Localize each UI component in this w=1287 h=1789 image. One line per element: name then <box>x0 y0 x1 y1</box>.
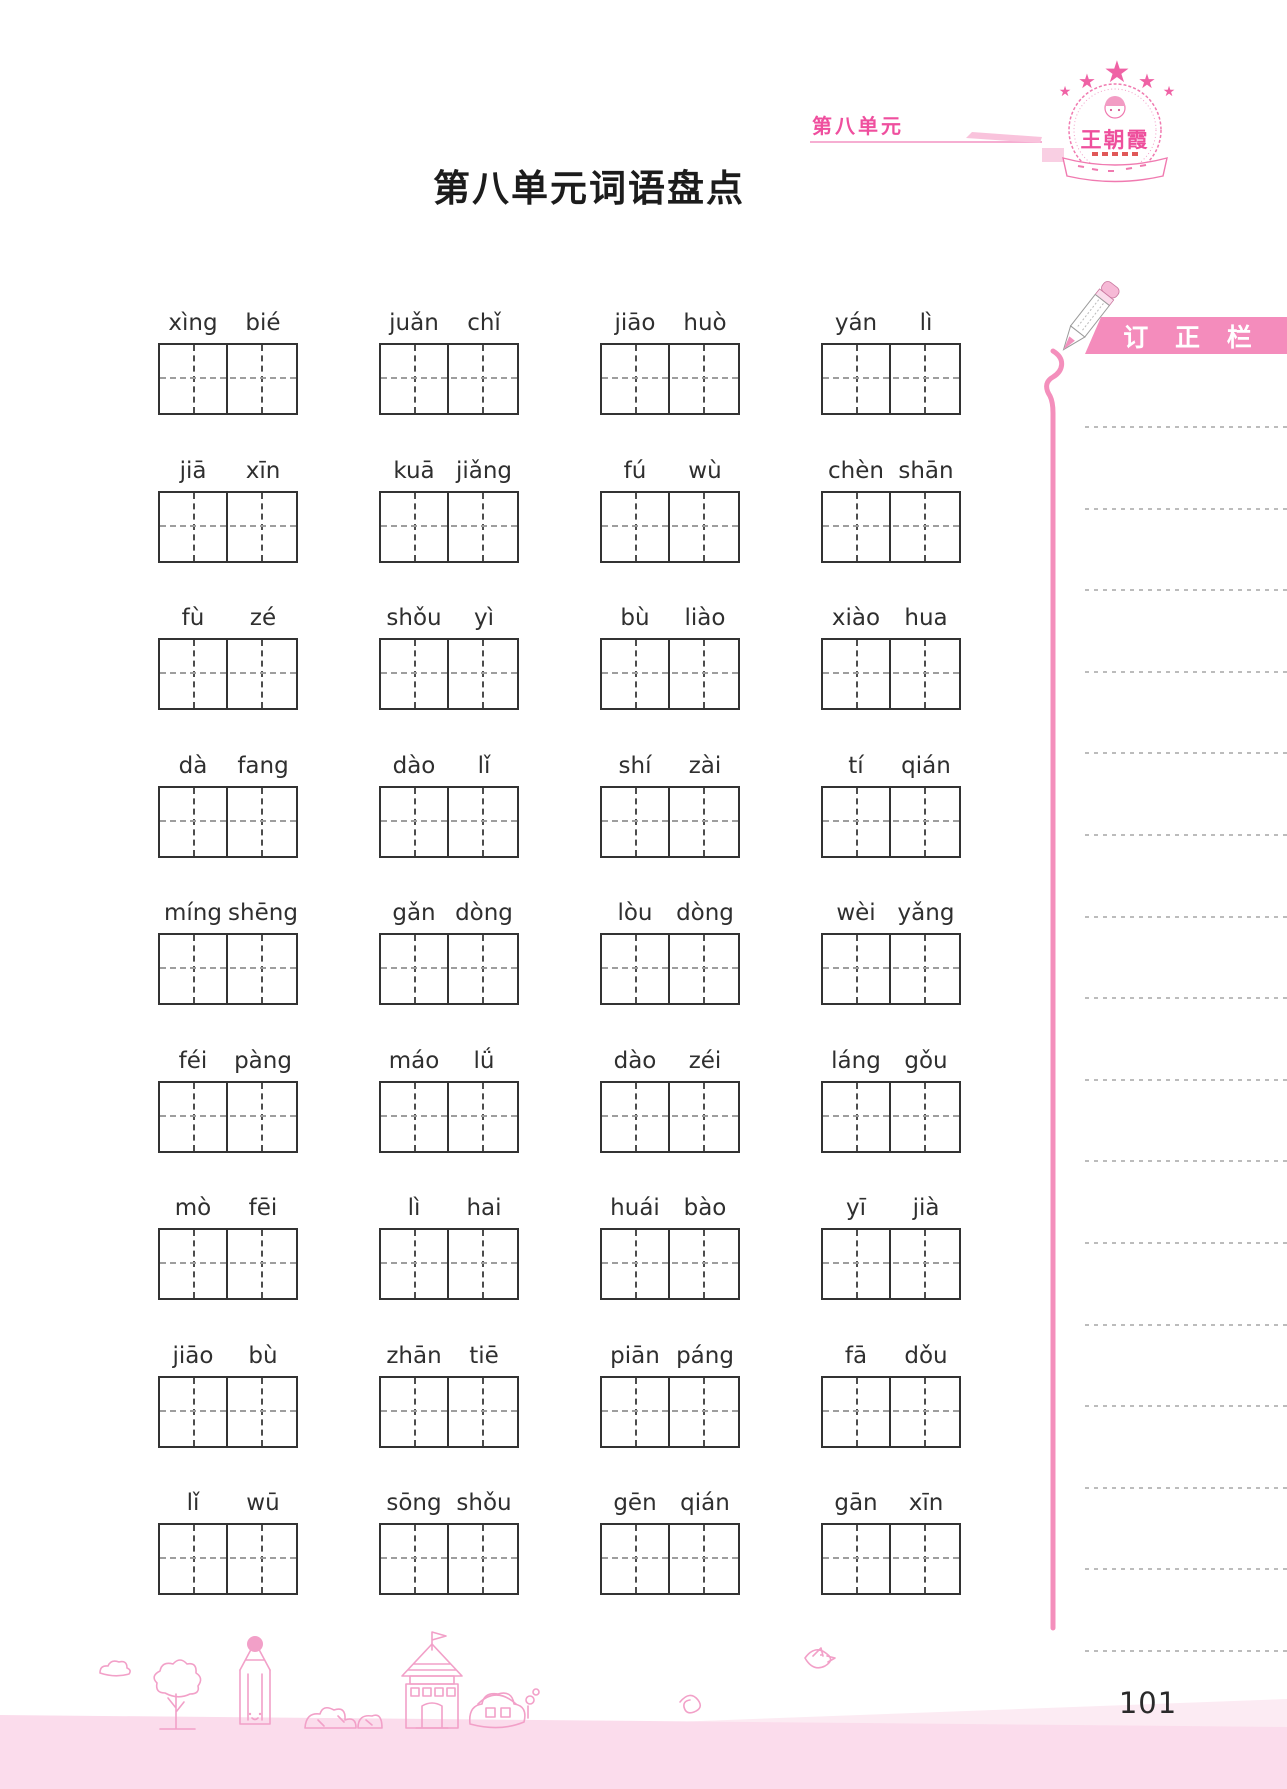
guide-dash-vertical <box>635 935 637 1003</box>
writing-box <box>600 638 740 710</box>
bushes-icon <box>305 1708 382 1728</box>
cell-divider <box>668 1083 670 1151</box>
pinyin-syllable: lǐ <box>158 1487 228 1519</box>
correction-ruled-line <box>1085 1324 1287 1326</box>
guide-dash-horizontal <box>381 967 517 969</box>
guide-dash-vertical <box>414 1230 416 1298</box>
word-entry: dàfang <box>158 786 298 858</box>
guide-dash-horizontal <box>823 377 959 379</box>
cell-divider <box>447 493 449 561</box>
cloud-icon <box>100 1661 130 1676</box>
guide-dash-horizontal <box>160 1262 296 1264</box>
pinyin-syllable: fēi <box>228 1192 298 1224</box>
guide-dash-horizontal <box>602 967 738 969</box>
guide-dash-horizontal <box>823 820 959 822</box>
guide-dash-horizontal <box>602 525 738 527</box>
correction-ruled-line <box>1085 426 1287 428</box>
writing-box <box>158 638 298 710</box>
pinyin-label: jiāobù <box>158 1340 298 1372</box>
word-entry: lìhai <box>379 1228 519 1300</box>
writing-box <box>158 1523 298 1595</box>
cell-divider <box>889 1378 891 1446</box>
word-entry: tíqián <box>821 786 961 858</box>
writing-box <box>600 491 740 563</box>
word-entry: jiāxīn <box>158 491 298 563</box>
word-entry: yījià <box>821 1228 961 1300</box>
writing-box <box>600 1228 740 1300</box>
guide-dash-horizontal <box>160 1115 296 1117</box>
cell-divider <box>226 1378 228 1446</box>
pinyin-syllable: juǎn <box>379 307 449 339</box>
guide-dash-vertical <box>261 935 263 1003</box>
guide-dash-vertical <box>482 1230 484 1298</box>
writing-box <box>821 491 961 563</box>
pinyin-syllable: xīn <box>228 455 298 487</box>
cell-divider <box>668 640 670 708</box>
guide-dash-vertical <box>703 1378 705 1446</box>
correction-ruled-line <box>1085 1242 1287 1244</box>
cell-divider <box>668 1525 670 1593</box>
pinyin-syllable: piān <box>600 1340 670 1372</box>
pinyin-label: dàozéi <box>600 1045 740 1077</box>
cell-divider <box>889 788 891 856</box>
guide-dash-vertical <box>261 640 263 708</box>
pinyin-label: kuājiǎng <box>379 455 519 487</box>
guide-dash-vertical <box>856 493 858 561</box>
guide-dash-horizontal <box>823 672 959 674</box>
guide-dash-horizontal <box>160 672 296 674</box>
guide-dash-horizontal <box>602 1115 738 1117</box>
pinyin-syllable: shǒu <box>379 602 449 634</box>
word-entry: shǒuyì <box>379 638 519 710</box>
word-entry: dàozéi <box>600 1081 740 1153</box>
cell-divider <box>447 345 449 413</box>
word-entry: sōngshǒu <box>379 1523 519 1595</box>
pinyin-label: lòudòng <box>600 897 740 929</box>
guide-dash-vertical <box>856 935 858 1003</box>
word-entry: juǎnchǐ <box>379 343 519 415</box>
guide-dash-vertical <box>261 1083 263 1151</box>
pinyin-syllable: yán <box>821 307 891 339</box>
writing-box <box>379 786 519 858</box>
guide-dash-horizontal <box>602 1262 738 1264</box>
guide-dash-vertical <box>635 788 637 856</box>
pinyin-syllable: lǐ <box>449 750 519 782</box>
swirl-icon <box>680 1695 700 1712</box>
correction-ruled-line <box>1085 916 1287 918</box>
pinyin-label: gǎndòng <box>379 897 519 929</box>
guide-dash-vertical <box>482 1525 484 1593</box>
guide-dash-vertical <box>924 788 926 856</box>
guide-dash-vertical <box>414 935 416 1003</box>
pinyin-label: shízài <box>600 750 740 782</box>
pinyin-label: yánlì <box>821 307 961 339</box>
pinyin-syllable: dòng <box>449 897 519 929</box>
guide-dash-vertical <box>482 788 484 856</box>
pinyin-syllable: wū <box>228 1487 298 1519</box>
pinyin-syllable: shí <box>600 750 670 782</box>
guide-dash-vertical <box>856 1230 858 1298</box>
pinyin-label: piānpáng <box>600 1340 740 1372</box>
word-entry: fādǒu <box>821 1376 961 1448</box>
guide-dash-vertical <box>924 640 926 708</box>
writing-box <box>379 343 519 415</box>
word-entry: kuājiǎng <box>379 491 519 563</box>
guide-dash-vertical <box>261 493 263 561</box>
pinyin-syllable: lǘ <box>449 1045 519 1077</box>
writing-box <box>158 1081 298 1153</box>
guide-dash-vertical <box>193 640 195 708</box>
cell-divider <box>226 788 228 856</box>
castle-icon <box>402 1632 462 1728</box>
pinyin-syllable: chǐ <box>449 307 519 339</box>
guide-dash-vertical <box>635 345 637 413</box>
word-entry: yánlì <box>821 343 961 415</box>
guide-dash-vertical <box>635 1230 637 1298</box>
tree-icon <box>154 1660 200 1729</box>
word-entry: jiāobù <box>158 1376 298 1448</box>
word-entry: zhāntiē <box>379 1376 519 1448</box>
guide-dash-vertical <box>703 788 705 856</box>
pinyin-syllable: bié <box>228 307 298 339</box>
cell-divider <box>889 1230 891 1298</box>
guide-dash-horizontal <box>823 1115 959 1117</box>
correction-ruled-line <box>1085 997 1287 999</box>
pinyin-syllable: fā <box>821 1340 891 1372</box>
guide-dash-vertical <box>856 640 858 708</box>
correction-ruled-line <box>1085 752 1287 754</box>
pinyin-syllable: pàng <box>228 1045 298 1077</box>
pinyin-syllable: zéi <box>670 1045 740 1077</box>
cell-divider <box>226 640 228 708</box>
word-entry: mòfēi <box>158 1228 298 1300</box>
pinyin-label: huáibào <box>600 1192 740 1224</box>
writing-box <box>158 1228 298 1300</box>
pinyin-syllable: shēng <box>228 897 298 929</box>
guide-dash-vertical <box>414 1378 416 1446</box>
word-entry: wèiyǎng <box>821 933 961 1005</box>
word-entry: xiàohua <box>821 638 961 710</box>
guide-dash-vertical <box>856 1525 858 1593</box>
pinyin-syllable: liào <box>670 602 740 634</box>
word-entry: xìngbié <box>158 343 298 415</box>
writing-box <box>600 1376 740 1448</box>
pinyin-syllable: bù <box>600 602 670 634</box>
writing-box <box>158 933 298 1005</box>
pinyin-syllable: yī <box>821 1192 891 1224</box>
guide-dash-vertical <box>703 935 705 1003</box>
guide-dash-vertical <box>261 788 263 856</box>
pinyin-syllable: mò <box>158 1192 228 1224</box>
guide-dash-vertical <box>703 1230 705 1298</box>
cell-divider <box>226 1083 228 1151</box>
footer-doodles <box>80 1628 880 1732</box>
pinyin-label: míngshēng <box>158 897 298 929</box>
word-entry: chènshān <box>821 491 961 563</box>
page-title: 第八单元词语盘点 <box>433 158 745 212</box>
guide-dash-vertical <box>482 1378 484 1446</box>
writing-box <box>821 1228 961 1300</box>
cell-divider <box>447 935 449 1003</box>
pinyin-syllable: gān <box>821 1487 891 1519</box>
writing-box <box>379 1523 519 1595</box>
writing-box <box>821 786 961 858</box>
guide-dash-vertical <box>703 493 705 561</box>
guide-dash-horizontal <box>160 377 296 379</box>
cell-divider <box>447 1083 449 1151</box>
brand-stamp: ★ ★ ★ ★ ★ 王朝霞 <box>1042 50 1192 190</box>
pinyin-syllable: míng <box>158 897 228 929</box>
guide-dash-horizontal <box>602 672 738 674</box>
word-entry: lǐwū <box>158 1523 298 1595</box>
pinyin-syllable: bào <box>670 1192 740 1224</box>
pinyin-label: lánggǒu <box>821 1045 961 1077</box>
word-entry: féipàng <box>158 1081 298 1153</box>
writing-box <box>821 343 961 415</box>
cell-divider <box>226 345 228 413</box>
guide-dash-horizontal <box>823 1262 959 1264</box>
pinyin-syllable: dòng <box>670 897 740 929</box>
guide-dash-vertical <box>703 1525 705 1593</box>
guide-dash-vertical <box>924 1378 926 1446</box>
cell-divider <box>447 788 449 856</box>
word-entry: gǎndòng <box>379 933 519 1005</box>
guide-dash-vertical <box>482 345 484 413</box>
cell-divider <box>889 1525 891 1593</box>
writing-box <box>379 638 519 710</box>
writing-box <box>821 1081 961 1153</box>
pinyin-syllable: páng <box>670 1340 740 1372</box>
pinyin-label: tíqián <box>821 750 961 782</box>
guide-dash-horizontal <box>823 967 959 969</box>
cell-divider <box>226 1525 228 1593</box>
brand-name: 王朝霞 <box>1081 128 1150 152</box>
writing-box <box>379 1228 519 1300</box>
correction-ruled-line <box>1085 1650 1287 1652</box>
guide-dash-vertical <box>482 1083 484 1151</box>
guide-dash-vertical <box>924 345 926 413</box>
cell-divider <box>889 493 891 561</box>
guide-dash-vertical <box>635 1378 637 1446</box>
guide-dash-vertical <box>924 1525 926 1593</box>
writing-box <box>600 786 740 858</box>
word-entry: máolǘ <box>379 1081 519 1153</box>
pinyin-label: dàfang <box>158 750 298 782</box>
guide-dash-vertical <box>856 1378 858 1446</box>
writing-box <box>158 786 298 858</box>
pinyin-label: lǐwū <box>158 1487 298 1519</box>
guide-dash-vertical <box>856 788 858 856</box>
guide-dash-horizontal <box>602 820 738 822</box>
cell-divider <box>889 345 891 413</box>
pinyin-syllable: kuā <box>379 455 449 487</box>
pinyin-label: xìngbié <box>158 307 298 339</box>
guide-dash-vertical <box>193 1230 195 1298</box>
pinyin-label: fùzé <box>158 602 298 634</box>
correction-ruled-line <box>1085 1568 1287 1570</box>
guide-dash-vertical <box>414 1525 416 1593</box>
cell-divider <box>226 935 228 1003</box>
guide-dash-horizontal <box>381 377 517 379</box>
guide-dash-horizontal <box>823 1557 959 1559</box>
guide-dash-horizontal <box>602 1557 738 1559</box>
pinyin-label: juǎnchǐ <box>379 307 519 339</box>
pinyin-label: fādǒu <box>821 1340 961 1372</box>
house-icon <box>470 1689 539 1728</box>
worksheet-page: 第八单元 ★ ★ ★ ★ ★ 王朝霞 第八单元词语盘点 xìngbiéjuǎ <box>0 0 1287 1789</box>
writing-box <box>379 491 519 563</box>
pinyin-label: jiāohuò <box>600 307 740 339</box>
writing-box <box>379 1376 519 1448</box>
pinyin-label: lìhai <box>379 1192 519 1224</box>
cell-divider <box>668 788 670 856</box>
pinyin-label: dàolǐ <box>379 750 519 782</box>
guide-dash-vertical <box>414 1083 416 1151</box>
header-underline-swoosh <box>800 120 1050 150</box>
pinyin-label: xiàohua <box>821 602 961 634</box>
writing-box <box>600 933 740 1005</box>
stamp-left-tab <box>1042 148 1064 162</box>
word-entry: piānpáng <box>600 1376 740 1448</box>
correction-ruled-line <box>1085 1405 1287 1407</box>
pinyin-syllable: fang <box>228 750 298 782</box>
guide-dash-vertical <box>635 640 637 708</box>
pinyin-syllable: hai <box>449 1192 519 1224</box>
writing-box <box>821 1376 961 1448</box>
guide-dash-vertical <box>193 935 195 1003</box>
guide-dash-vertical <box>703 345 705 413</box>
pinyin-syllable: bù <box>228 1340 298 1372</box>
guide-dash-horizontal <box>602 1410 738 1412</box>
star-icon: ★ <box>1138 69 1156 93</box>
guide-dash-horizontal <box>381 820 517 822</box>
guide-dash-horizontal <box>602 377 738 379</box>
bird-icon <box>805 1648 835 1668</box>
star-icon: ★ <box>1059 84 1072 100</box>
pinyin-syllable: zài <box>670 750 740 782</box>
pinyin-syllable: wù <box>670 455 740 487</box>
guide-dash-vertical <box>482 640 484 708</box>
pinyin-syllable: lòu <box>600 897 670 929</box>
word-entry: gēnqián <box>600 1523 740 1595</box>
pinyin-syllable: fù <box>158 602 228 634</box>
pinyin-syllable: láng <box>821 1045 891 1077</box>
star-icon: ★ <box>1163 84 1176 100</box>
word-entry: bùliào <box>600 638 740 710</box>
cell-divider <box>447 1378 449 1446</box>
pinyin-label: yījià <box>821 1192 961 1224</box>
guide-dash-vertical <box>414 345 416 413</box>
cell-divider <box>226 1230 228 1298</box>
cell-divider <box>226 493 228 561</box>
guide-dash-vertical <box>703 1083 705 1151</box>
guide-dash-vertical <box>414 788 416 856</box>
star-icon: ★ <box>1078 69 1096 93</box>
cell-divider <box>447 1525 449 1593</box>
pinyin-label: zhāntiē <box>379 1340 519 1372</box>
pinyin-syllable: yì <box>449 602 519 634</box>
guide-dash-horizontal <box>823 1410 959 1412</box>
cell-divider <box>668 1230 670 1298</box>
writing-box <box>600 1523 740 1595</box>
cell-divider <box>889 935 891 1003</box>
guide-dash-vertical <box>482 935 484 1003</box>
pinyin-label: wèiyǎng <box>821 897 961 929</box>
correction-banner-title: 订 正 栏 <box>1111 318 1260 354</box>
pinyin-syllable: jiā <box>158 455 228 487</box>
pinyin-syllable: dà <box>158 750 228 782</box>
guide-dash-horizontal <box>381 1557 517 1559</box>
pinyin-syllable: sōng <box>379 1487 449 1519</box>
guide-dash-vertical <box>193 1525 195 1593</box>
word-entry: shízài <box>600 786 740 858</box>
guide-dash-vertical <box>193 493 195 561</box>
cell-divider <box>668 935 670 1003</box>
pinyin-label: mòfēi <box>158 1192 298 1224</box>
pinyin-label: sōngshǒu <box>379 1487 519 1519</box>
guide-dash-vertical <box>414 640 416 708</box>
correction-ruled-line <box>1085 1487 1287 1489</box>
guide-dash-vertical <box>261 1230 263 1298</box>
cell-divider <box>889 640 891 708</box>
pinyin-syllable: lì <box>379 1192 449 1224</box>
correction-ruled-line <box>1085 508 1287 510</box>
word-entry: jiāohuò <box>600 343 740 415</box>
guide-dash-horizontal <box>823 525 959 527</box>
guide-dash-vertical <box>193 345 195 413</box>
guide-dash-horizontal <box>381 672 517 674</box>
pink-wavy-line <box>1047 351 1062 1628</box>
guide-dash-vertical <box>635 1525 637 1593</box>
pinyin-syllable: xiào <box>821 602 891 634</box>
pinyin-syllable: xìng <box>158 307 228 339</box>
correction-ruled-line <box>1085 1079 1287 1081</box>
guide-dash-vertical <box>635 1083 637 1151</box>
guide-dash-vertical <box>924 493 926 561</box>
guide-dash-horizontal <box>160 1410 296 1412</box>
word-entry: gānxīn <box>821 1523 961 1595</box>
writing-box <box>821 933 961 1005</box>
pinyin-syllable: tiē <box>449 1340 519 1372</box>
word-entry: lòudòng <box>600 933 740 1005</box>
pinyin-syllable: máo <box>379 1045 449 1077</box>
pinyin-syllable: gēn <box>600 1487 670 1519</box>
word-entry: fùzé <box>158 638 298 710</box>
correction-ruled-line <box>1085 671 1287 673</box>
guide-dash-vertical <box>193 1083 195 1151</box>
word-entry: dàolǐ <box>379 786 519 858</box>
guide-dash-vertical <box>635 493 637 561</box>
pinyin-label: gēnqián <box>600 1487 740 1519</box>
writing-box <box>379 1081 519 1153</box>
pinyin-label: jiāxīn <box>158 455 298 487</box>
writing-box <box>600 1081 740 1153</box>
pinyin-label: shǒuyì <box>379 602 519 634</box>
correction-ruled-line <box>1085 1160 1287 1162</box>
pencil-doodle-icon <box>240 1636 270 1724</box>
guide-dash-horizontal <box>160 525 296 527</box>
cell-divider <box>668 1378 670 1446</box>
writing-box <box>158 1376 298 1448</box>
correction-margin-line <box>950 255 1130 1650</box>
page-number: 101 <box>1108 1686 1188 1720</box>
pinyin-syllable: fú <box>600 455 670 487</box>
cell-divider <box>447 1230 449 1298</box>
pinyin-syllable: jiāo <box>158 1340 228 1372</box>
pinyin-syllable: dào <box>600 1045 670 1077</box>
word-entry: míngshēng <box>158 933 298 1005</box>
pinyin-syllable: zé <box>228 602 298 634</box>
